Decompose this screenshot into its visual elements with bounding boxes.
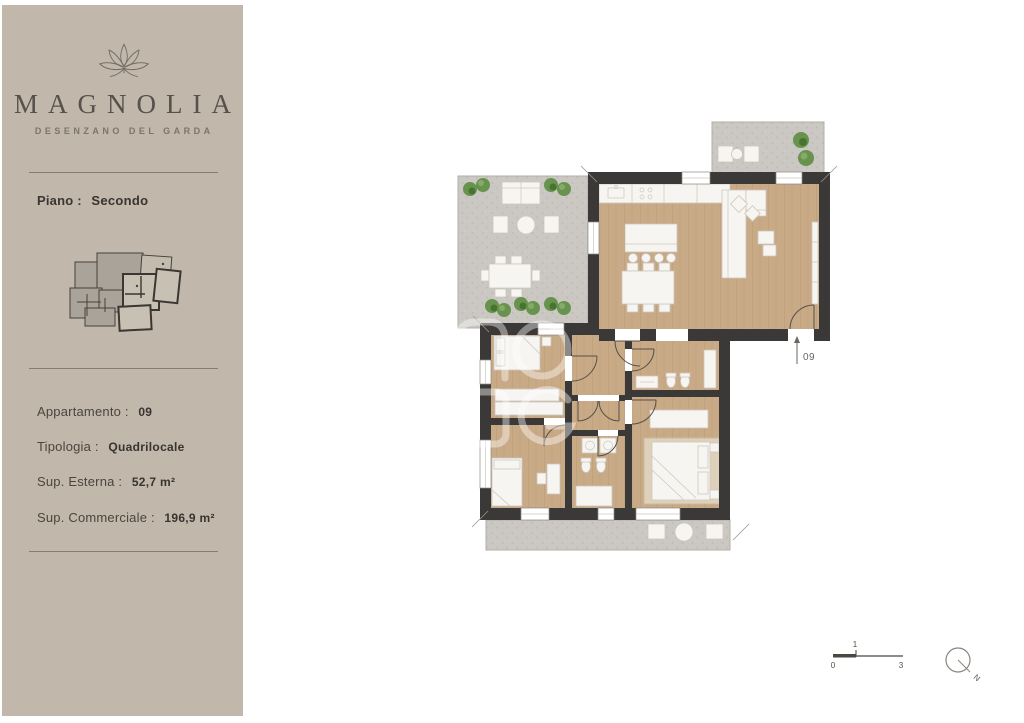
- scale-mid-label: 1: [853, 640, 858, 649]
- lotus-logo-icon: [94, 37, 154, 85]
- detail-label: Appartamento :: [37, 404, 129, 419]
- terrace-left: [458, 176, 588, 328]
- divider-2: [29, 368, 218, 369]
- terrace-top-right: [712, 122, 824, 176]
- detail-row-tipologia: Tipologia : Quadrilocale: [37, 439, 185, 454]
- floor-value: Secondo: [91, 193, 148, 208]
- side-table-2: [763, 245, 776, 256]
- detail-value: 196,9 m²: [164, 511, 214, 525]
- scale-end-label: 3: [899, 661, 904, 670]
- sidebar: MAGNOLIA DESENZANO DEL GARDA Piano : Sec…: [2, 5, 243, 716]
- site-plan-thumbnail: [57, 246, 187, 338]
- kitchen: [599, 184, 730, 203]
- unit-number-label: 09: [803, 352, 815, 363]
- floor-label: Piano :: [37, 193, 82, 208]
- divider-1: [29, 172, 218, 173]
- brand-subtitle: DESENZANO DEL GARDA: [2, 126, 243, 136]
- compass-north-label: N: [972, 673, 982, 684]
- detail-value: Quadrilocale: [108, 440, 184, 454]
- detail-row-appartamento: Appartamento : 09: [37, 404, 152, 419]
- detail-label: Tipologia :: [37, 439, 99, 454]
- scale-bar: 1 0 3: [831, 640, 904, 670]
- detail-row-sup-commerciale: Sup. Commerciale : 196,9 m²: [37, 510, 215, 525]
- detail-row-sup-esterna: Sup. Esterna : 52,7 m²: [37, 474, 175, 489]
- brochure-page: 09 1 0 3 N: [0, 0, 1024, 723]
- divider-3: [29, 551, 218, 552]
- scale-start-label: 0: [831, 661, 836, 670]
- detail-value: 52,7 m²: [132, 475, 175, 489]
- floor-row: Piano : Secondo: [37, 193, 148, 208]
- radiator: [812, 222, 818, 304]
- detail-label: Sup. Esterna :: [37, 474, 122, 489]
- detail-value: 09: [138, 405, 152, 419]
- dining-table: [622, 263, 674, 312]
- compass-icon: N: [946, 648, 982, 683]
- detail-label: Sup. Commerciale :: [37, 510, 155, 525]
- side-table: [758, 231, 774, 244]
- brand-name: MAGNOLIA: [2, 89, 243, 120]
- balcony-bottom: [486, 520, 730, 550]
